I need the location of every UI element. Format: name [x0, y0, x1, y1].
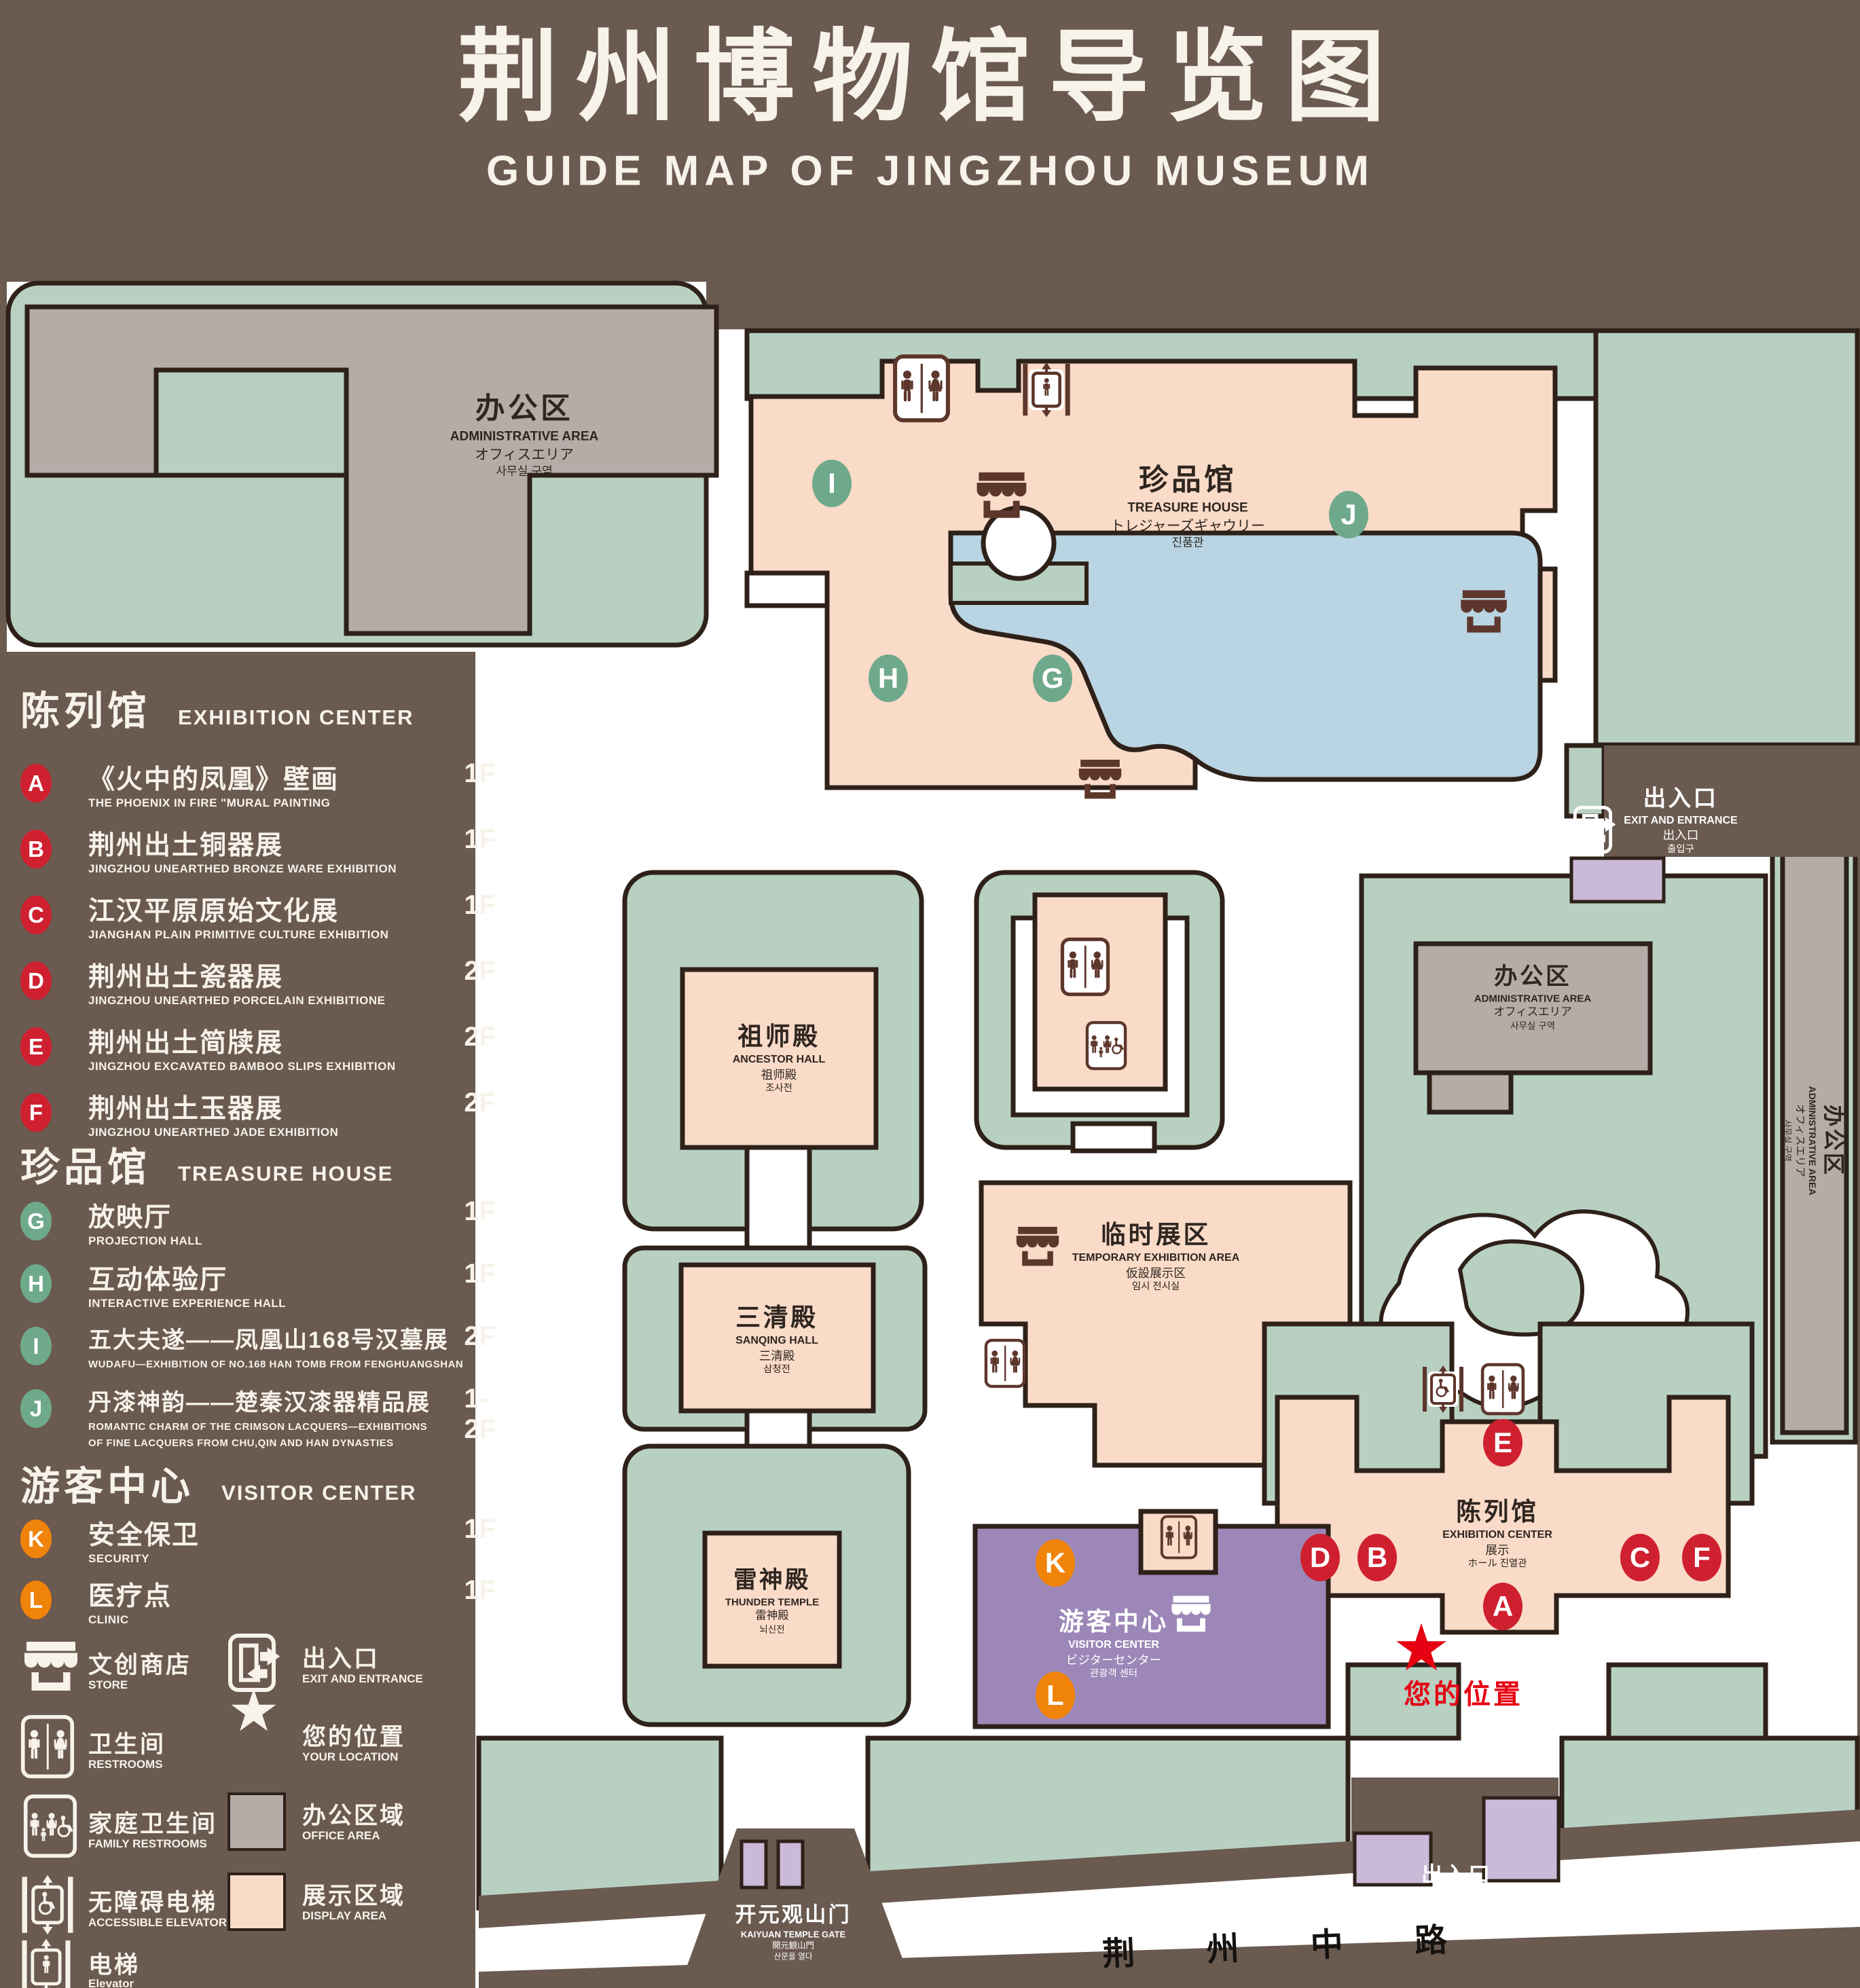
marker-H: H: [869, 655, 908, 702]
marker-B: B: [1357, 1534, 1397, 1581]
elevator-icon: [20, 1936, 72, 1988]
label-admin-mid: 办公区ADMINISTRATIVE AREA オフィスエリア사무실 구역: [1474, 961, 1592, 1031]
exit-icon: [1573, 805, 1622, 854]
legend-item-E: E 荆州出土简牍展JINGZHOU EXCAVATED BAMBOO SLIPS…: [20, 1027, 482, 1090]
marker-C: C: [1620, 1534, 1660, 1581]
marker-K: K: [1036, 1539, 1075, 1587]
family-restrooms-icon: [1085, 1020, 1127, 1071]
restrooms-icon: [20, 1714, 75, 1779]
store-icon: [20, 1642, 81, 1695]
legend-item-J: J 丹漆神韵——楚秦汉漆器精品展ROMANTIC CHARM OF THE CR…: [20, 1389, 482, 1452]
axis-path-1: [747, 1147, 809, 1248]
legend-item-H: H 互动体验厅INTERACTIVE EXPERIENCE HALL 1F: [20, 1264, 482, 1327]
exhibition-grounds-se: [1609, 1665, 1766, 1738]
marker-D: D: [1300, 1534, 1340, 1581]
badge-C: C: [20, 896, 52, 934]
east-grounds: [1596, 331, 1857, 745]
marker-F: F: [1682, 1534, 1721, 1581]
label-temporary-exhibition: 临时展区TEMPORARY EXHIBITION AREA 仮設展示区임시 전시…: [1072, 1219, 1240, 1293]
badge-E: E: [20, 1027, 52, 1066]
restrooms-icon: [892, 354, 951, 423]
legend-item-C: C 江汉平原原始文化展JIANGHAN PLAIN PRIMITIVE CULT…: [20, 896, 482, 958]
marker-E: E: [1483, 1419, 1522, 1467]
legend-item-G: G 放映厅PROJECTION HALL 1F: [20, 1202, 482, 1264]
marker-L: L: [1036, 1672, 1075, 1719]
restrooms-icon: [1160, 1515, 1198, 1560]
guide-map-poster: 荆州博物馆导览图 GUIDE MAP OF JINGZHOU MUSEUM: [0, 0, 1860, 1988]
ne-exit-booth: [1571, 858, 1664, 902]
store-icon: [1169, 1596, 1214, 1635]
badge-B: B: [20, 830, 52, 868]
store-icon: [1013, 1227, 1062, 1270]
label-sanqing-hall: 三清殿SANQING HALL 三清殿삼청전: [735, 1302, 818, 1376]
restrooms-icon: [984, 1338, 1026, 1388]
store-icon: [973, 472, 1030, 522]
marker-A: A: [1483, 1583, 1522, 1630]
gate-booth-east: [778, 1841, 803, 1888]
marker-I: I: [812, 460, 852, 507]
legend-item-K: K 安全保卫SECURITY 1F: [20, 1520, 482, 1582]
location-star-icon: ★: [227, 1678, 280, 1744]
your-location-star: ★: [1392, 1616, 1451, 1681]
badge-F: F: [20, 1093, 52, 1132]
badge-J: J: [20, 1389, 52, 1428]
administrative-building-mid-annex: [1429, 1073, 1511, 1112]
legend-section-exhibition-center: 陈列馆EXHIBITION CENTER: [20, 679, 414, 736]
accessible-elevator-icon: [20, 1873, 75, 1937]
office-area-swatch: [227, 1792, 286, 1851]
store-icon: [1457, 590, 1510, 636]
south-grounds-west: [479, 1738, 721, 1908]
marker-G: G: [1033, 655, 1072, 702]
label-exit-northeast: 出入口EXIT AND ENTRANCE 出入口출입구: [1624, 784, 1737, 856]
garden-island: [1460, 1241, 1582, 1334]
elevator-icon: [1021, 360, 1072, 420]
restroom-courtyard-gap: [1073, 1124, 1154, 1151]
badge-A: A: [20, 764, 52, 803]
store-icon: [1076, 760, 1125, 803]
badge-D: D: [20, 961, 52, 1000]
legend-item-A: A 《火中的凤凰》壁画THE PHOENIX IN FIRE "MURAL PA…: [20, 764, 482, 826]
label-treasure-house: 珍品馆TREASURE HOUSE トレジャーズギャウリー진품관: [1110, 462, 1265, 551]
badge-I: I: [20, 1327, 52, 1365]
display-area-swatch: [227, 1873, 286, 1931]
family-restrooms-icon: [20, 1794, 80, 1858]
label-kaiyuan-gate: 开元观山门KAIYUAN TEMPLE GATE 開元観山門산문을 열다: [735, 1902, 852, 1962]
legend-item-I: I 五大夫遂——凤凰山168号汉墓展WUDAFU—EXHIBITION OF N…: [20, 1327, 482, 1389]
legend-section-treasure-house: 珍品馆TREASURE HOUSE: [20, 1135, 393, 1192]
legend-section-visitor-center: 游客中心VISITOR CENTER: [20, 1454, 417, 1511]
legend-item-B: B 荆州出土铜器展JINGZHOU UNEARTHED BRONZE WARE …: [20, 830, 482, 892]
label-ancestor-hall: 祖师殿ANCESTOR HALL 祖师殿조사전: [733, 1020, 826, 1095]
marker-J: J: [1329, 491, 1368, 538]
restrooms-icon: [1480, 1362, 1525, 1416]
restrooms-icon: [1060, 937, 1110, 997]
your-location-label: 您的位置: [1404, 1672, 1523, 1712]
badge-G: G: [20, 1202, 52, 1240]
accessible-elevator-icon: [1421, 1362, 1465, 1416]
legend-item-D: D 荆州出土瓷器展JINGZHOU UNEARTHED PORCELAIN EX…: [20, 961, 482, 1024]
label-visitor-center: 游客中心VISITOR CENTER ビジターセンター관광객 센터: [1059, 1606, 1169, 1680]
label-admin-nw: 办公区ADMINISTRATIVE AREA オフィスエリア사무실 구역: [450, 390, 599, 479]
gate-booth-west: [742, 1841, 766, 1888]
label-exhibition-center: 陈列馆EXHIBITION CENTER 展示ホール 진열관: [1442, 1496, 1552, 1570]
label-admin-east: 办公区ADMINISTRATIVE AREA オフィスエリア사무실 구역: [1782, 1086, 1847, 1196]
label-thunder-temple: 雷神殿THUNDER TEMPLE 雷神殿뇌신전: [725, 1565, 819, 1635]
legend-your-location: ★ 您的位置YOUR LOCATION: [227, 1711, 280, 1734]
badge-L: L: [20, 1581, 52, 1619]
badge-H: H: [20, 1264, 52, 1303]
treasure-house-passage: [747, 573, 827, 606]
badge-K: K: [20, 1520, 52, 1558]
